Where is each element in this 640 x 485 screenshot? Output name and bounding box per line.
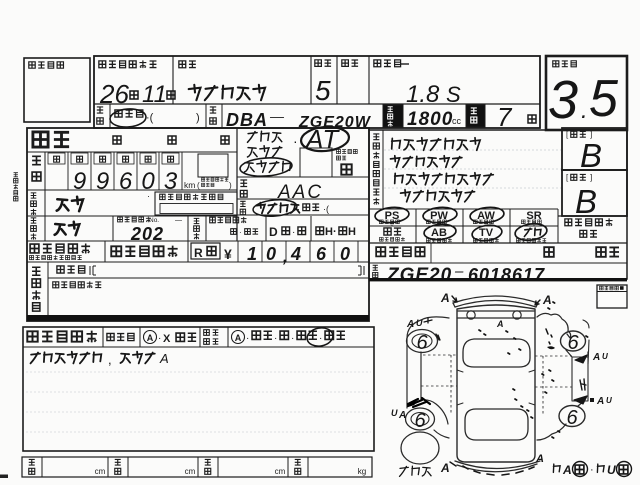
svg-text:A: A: [398, 410, 406, 421]
svg-text:B: B: [580, 137, 602, 174]
svg-text:No.: No.: [149, 217, 159, 224]
svg-text:D: D: [269, 225, 278, 239]
svg-text:6: 6: [567, 332, 579, 354]
svg-text:A: A: [159, 351, 169, 366]
svg-text:A: A: [596, 396, 604, 407]
svg-text:cm: cm: [185, 467, 196, 476]
svg-text:·: ·: [291, 333, 294, 344]
svg-text:R: R: [194, 246, 203, 260]
svg-text:·: ·: [293, 133, 298, 149]
svg-text:U: U: [391, 408, 398, 418]
svg-text:–: –: [454, 263, 464, 280]
svg-text:·: ·: [239, 228, 242, 237]
svg-text:6: 6: [414, 410, 426, 432]
svg-text:A: A: [147, 333, 154, 343]
svg-text:6: 6: [416, 332, 428, 354]
svg-text:·: ·: [274, 333, 277, 344]
svg-text:X: X: [163, 333, 171, 345]
svg-text:202: 202: [130, 224, 164, 244]
svg-text:(: (: [197, 181, 200, 190]
svg-text:cm: cm: [275, 467, 286, 476]
svg-text:·: ·: [158, 333, 161, 344]
svg-text:A: A: [592, 352, 600, 363]
svg-text:DBA: DBA: [226, 110, 268, 130]
svg-text:·(: ·(: [323, 204, 329, 214]
svg-text:.: .: [581, 97, 588, 124]
svg-text:A: A: [440, 291, 450, 305]
svg-text:): ): [229, 181, 232, 190]
svg-text:·(: ·(: [146, 112, 154, 124]
svg-text:6: 6: [119, 168, 133, 195]
svg-text:26: 26: [99, 79, 129, 109]
svg-text:B: B: [575, 183, 597, 220]
svg-text:,: ,: [282, 249, 287, 266]
svg-text:A: A: [496, 319, 504, 329]
svg-text:H·: H·: [325, 226, 337, 238]
svg-text:7: 7: [497, 102, 513, 132]
svg-text:6: 6: [316, 244, 327, 264]
svg-text:—: —: [175, 217, 182, 224]
svg-text:—: —: [269, 108, 285, 124]
svg-text:,: ,: [108, 352, 112, 367]
svg-text:A: A: [406, 319, 414, 330]
svg-text:9: 9: [73, 168, 86, 195]
svg-text:): ): [196, 112, 200, 124]
svg-text:3: 3: [548, 70, 578, 130]
svg-text:¥: ¥: [224, 246, 232, 262]
svg-text:0: 0: [340, 244, 350, 264]
svg-text:6: 6: [566, 407, 578, 429]
svg-text:A: A: [440, 461, 450, 475]
svg-text:1: 1: [247, 244, 257, 264]
svg-text:AB: AB: [431, 227, 447, 239]
svg-text:4: 4: [290, 244, 301, 264]
svg-text:·: ·: [319, 333, 322, 344]
svg-text:11: 11: [142, 81, 167, 108]
svg-text:3: 3: [164, 168, 178, 195]
svg-text:TV: TV: [479, 227, 494, 239]
svg-text:]: ]: [590, 173, 592, 182]
svg-text:0: 0: [266, 244, 276, 264]
svg-text:9: 9: [96, 168, 109, 195]
svg-text:A: A: [235, 333, 242, 343]
svg-text:5: 5: [315, 75, 331, 106]
svg-text:·: ·: [246, 333, 249, 344]
svg-text:U: U: [416, 318, 423, 328]
svg-text:H: H: [348, 226, 356, 238]
svg-text:·: ·: [292, 227, 295, 238]
svg-text:·: ·: [147, 191, 150, 201]
svg-text:A: A: [542, 293, 552, 307]
svg-text:1800: 1800: [407, 109, 453, 130]
svg-text:cc: cc: [452, 116, 462, 126]
svg-text:1.8: 1.8: [406, 81, 440, 108]
svg-text:U: U: [606, 396, 612, 405]
svg-text:cm: cm: [95, 467, 106, 476]
svg-text:·: ·: [297, 204, 300, 214]
svg-text:U: U: [602, 352, 608, 361]
svg-text:U: U: [607, 463, 616, 477]
svg-text:A: A: [535, 453, 544, 465]
svg-text:km: km: [184, 180, 195, 190]
svg-text:S: S: [446, 82, 461, 107]
svg-text:ZGE20: ZGE20: [386, 265, 452, 286]
svg-text:kg: kg: [358, 467, 366, 476]
svg-text:6018617: 6018617: [468, 265, 545, 285]
svg-text:A: A: [562, 463, 572, 477]
svg-text:5: 5: [589, 70, 619, 128]
svg-text:·: ·: [590, 464, 594, 476]
